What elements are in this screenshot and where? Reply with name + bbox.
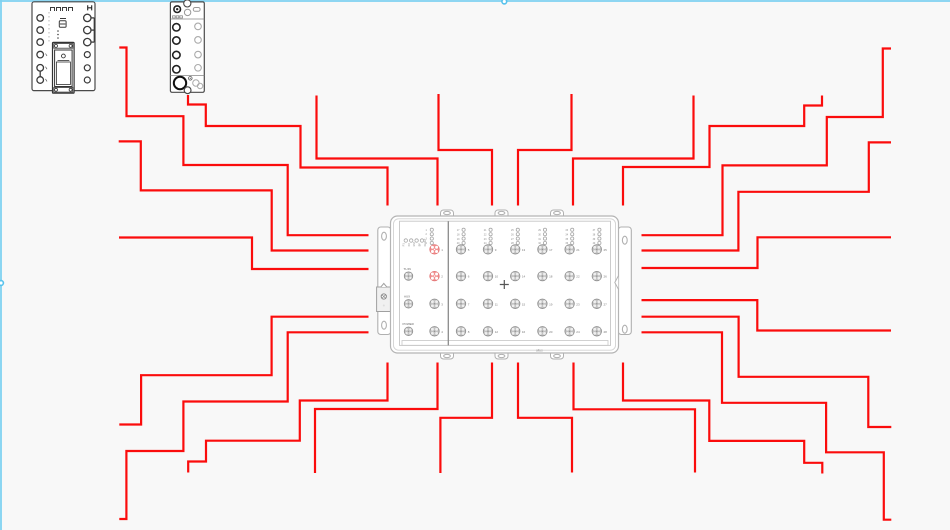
svg-text:24: 24 xyxy=(576,330,580,334)
svg-text:14: 14 xyxy=(522,275,526,279)
svg-text:17: 17 xyxy=(549,248,553,252)
svg-text:22: 22 xyxy=(576,275,580,279)
svg-text:26: 26 xyxy=(604,275,608,279)
svg-text:P1: P1 xyxy=(401,243,405,247)
svg-text:POWER: POWER xyxy=(403,322,415,326)
svg-text:10: 10 xyxy=(495,275,499,279)
svg-text:16: 16 xyxy=(522,330,526,334)
svg-text:20: 20 xyxy=(549,330,553,334)
svg-text:AUX: AUX xyxy=(404,295,410,299)
svg-text:13: 13 xyxy=(522,248,526,252)
svg-text:12: 12 xyxy=(495,330,499,334)
svg-text:25: 25 xyxy=(604,248,608,252)
svg-text:27: 27 xyxy=(604,302,608,306)
svg-text:21: 21 xyxy=(576,248,580,252)
svg-text:19: 19 xyxy=(549,302,553,306)
svg-text:28: 28 xyxy=(604,330,608,334)
svg-text:TL/IN: TL/IN xyxy=(404,267,411,271)
svg-text:18: 18 xyxy=(549,275,553,279)
svg-text:11: 11 xyxy=(495,302,498,306)
svg-text:23: 23 xyxy=(576,302,580,306)
svg-text:BF: BF xyxy=(418,243,422,247)
svg-text:P2: P2 xyxy=(407,243,411,247)
svg-text:RM: RM xyxy=(412,242,416,246)
svg-text:altus: altus xyxy=(536,349,543,353)
svg-text:15: 15 xyxy=(522,302,526,306)
